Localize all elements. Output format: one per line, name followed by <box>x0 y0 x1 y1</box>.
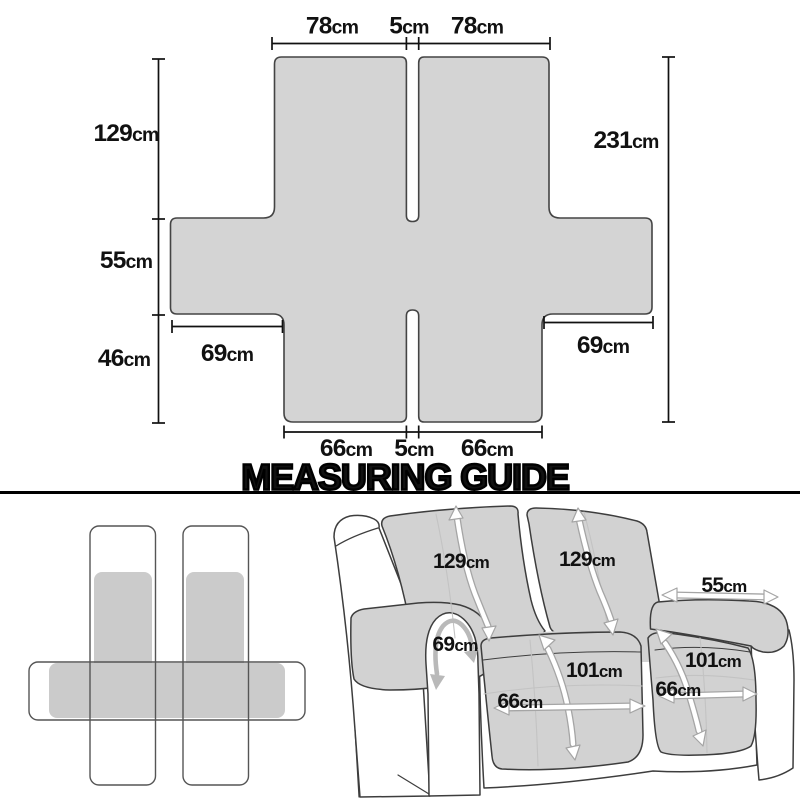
svg-text:231cm: 231cm <box>593 127 659 154</box>
svg-text:129cm: 129cm <box>93 120 159 147</box>
svg-text:101cm: 101cm <box>566 659 623 682</box>
svg-text:78cm: 78cm <box>451 13 504 40</box>
svg-text:55cm: 55cm <box>701 574 747 597</box>
svg-text:69cm: 69cm <box>432 633 478 656</box>
svg-text:69cm: 69cm <box>577 332 630 359</box>
svg-text:129cm: 129cm <box>433 550 490 573</box>
svg-text:55cm: 55cm <box>100 247 153 274</box>
svg-text:129cm: 129cm <box>559 548 616 571</box>
svg-text:46cm: 46cm <box>98 345 151 372</box>
svg-text:78cm: 78cm <box>306 13 359 40</box>
svg-text:69cm: 69cm <box>201 340 254 367</box>
svg-text:66cm: 66cm <box>655 678 701 701</box>
svg-text:66cm: 66cm <box>497 690 543 713</box>
svg-text:5cm: 5cm <box>389 13 429 40</box>
svg-text:101cm: 101cm <box>685 649 742 672</box>
